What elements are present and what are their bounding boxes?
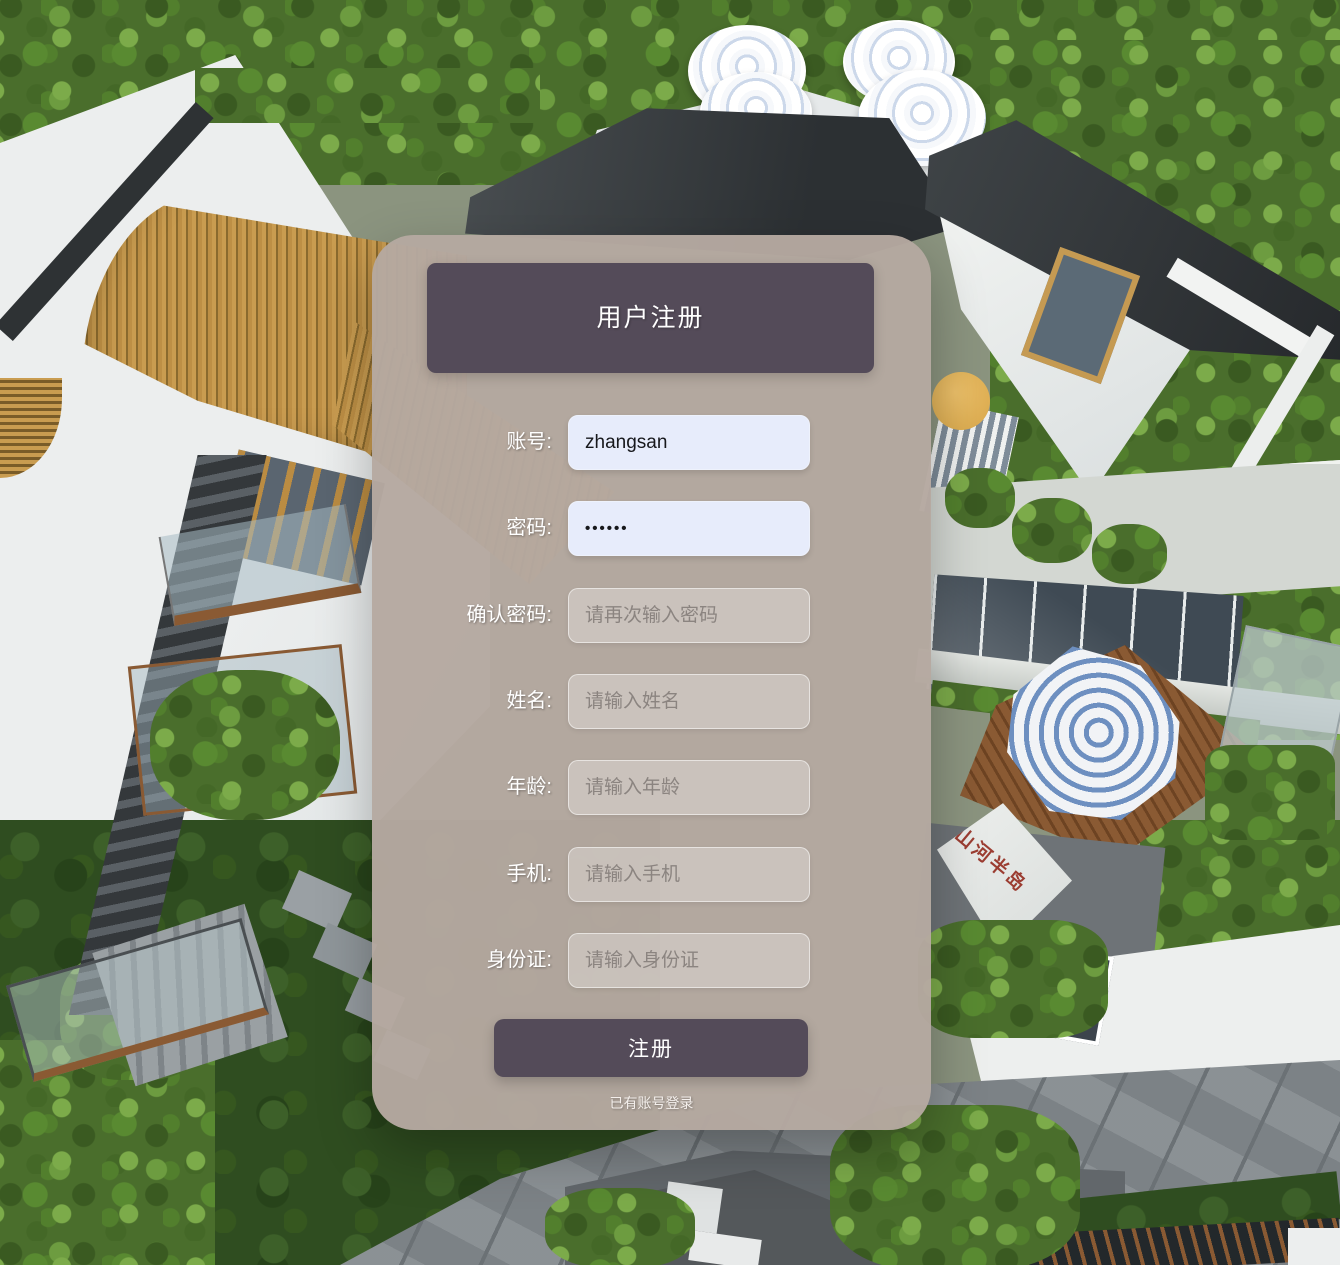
registration-panel: 用户注册 账号: 密码: 确认密码: 姓名: 年龄: 手机: 身份证: (372, 235, 931, 1130)
name-label: 姓名: (372, 674, 552, 729)
account-label: 账号: (372, 415, 552, 470)
field-row-phone: 手机: (372, 847, 931, 902)
bottomright-bushes (918, 920, 1108, 1038)
password-input[interactable] (568, 501, 810, 556)
phone-input[interactable] (568, 847, 810, 902)
field-row-confirm-password: 确认密码: (372, 588, 931, 643)
page-title: 用户注册 (427, 263, 874, 373)
idcard-input[interactable] (568, 933, 810, 988)
field-row-name: 姓名: (372, 674, 931, 729)
field-row-account: 账号: (372, 415, 931, 470)
planter-topleft (195, 68, 540, 123)
yellow-round-decor (932, 372, 990, 430)
bush-bottom-center (545, 1188, 695, 1265)
registration-header: 用户注册 (427, 263, 874, 373)
age-label: 年龄: (372, 760, 552, 815)
courtyard-tree (150, 670, 340, 820)
password-label: 密码: (372, 501, 552, 556)
phone-label: 手机: (372, 847, 552, 902)
confirm-password-input[interactable] (568, 588, 810, 643)
confirm-password-label: 确认密码: (372, 588, 552, 643)
login-link[interactable]: 已有账号登录 (372, 1093, 931, 1113)
terrace-shrub-3 (1092, 524, 1167, 584)
name-input[interactable] (568, 674, 810, 729)
terrace-shrub-1 (945, 468, 1015, 528)
account-input[interactable] (568, 415, 810, 470)
deck-planter (1205, 745, 1335, 840)
field-row-password: 密码: (372, 501, 931, 556)
register-button[interactable]: 注册 (494, 1019, 808, 1077)
screenshot-stage: 山河半岛 用户注册 账号: 密码: (0, 0, 1340, 1265)
terrace-shrub-2 (1012, 498, 1092, 563)
field-row-age: 年龄: (372, 760, 931, 815)
white-wall-corner-br (1288, 1228, 1340, 1265)
age-input[interactable] (568, 760, 810, 815)
field-row-idcard: 身份证: (372, 933, 931, 988)
idcard-label: 身份证: (372, 933, 552, 988)
calligraphy-text: 山河半岛 (950, 821, 1035, 898)
